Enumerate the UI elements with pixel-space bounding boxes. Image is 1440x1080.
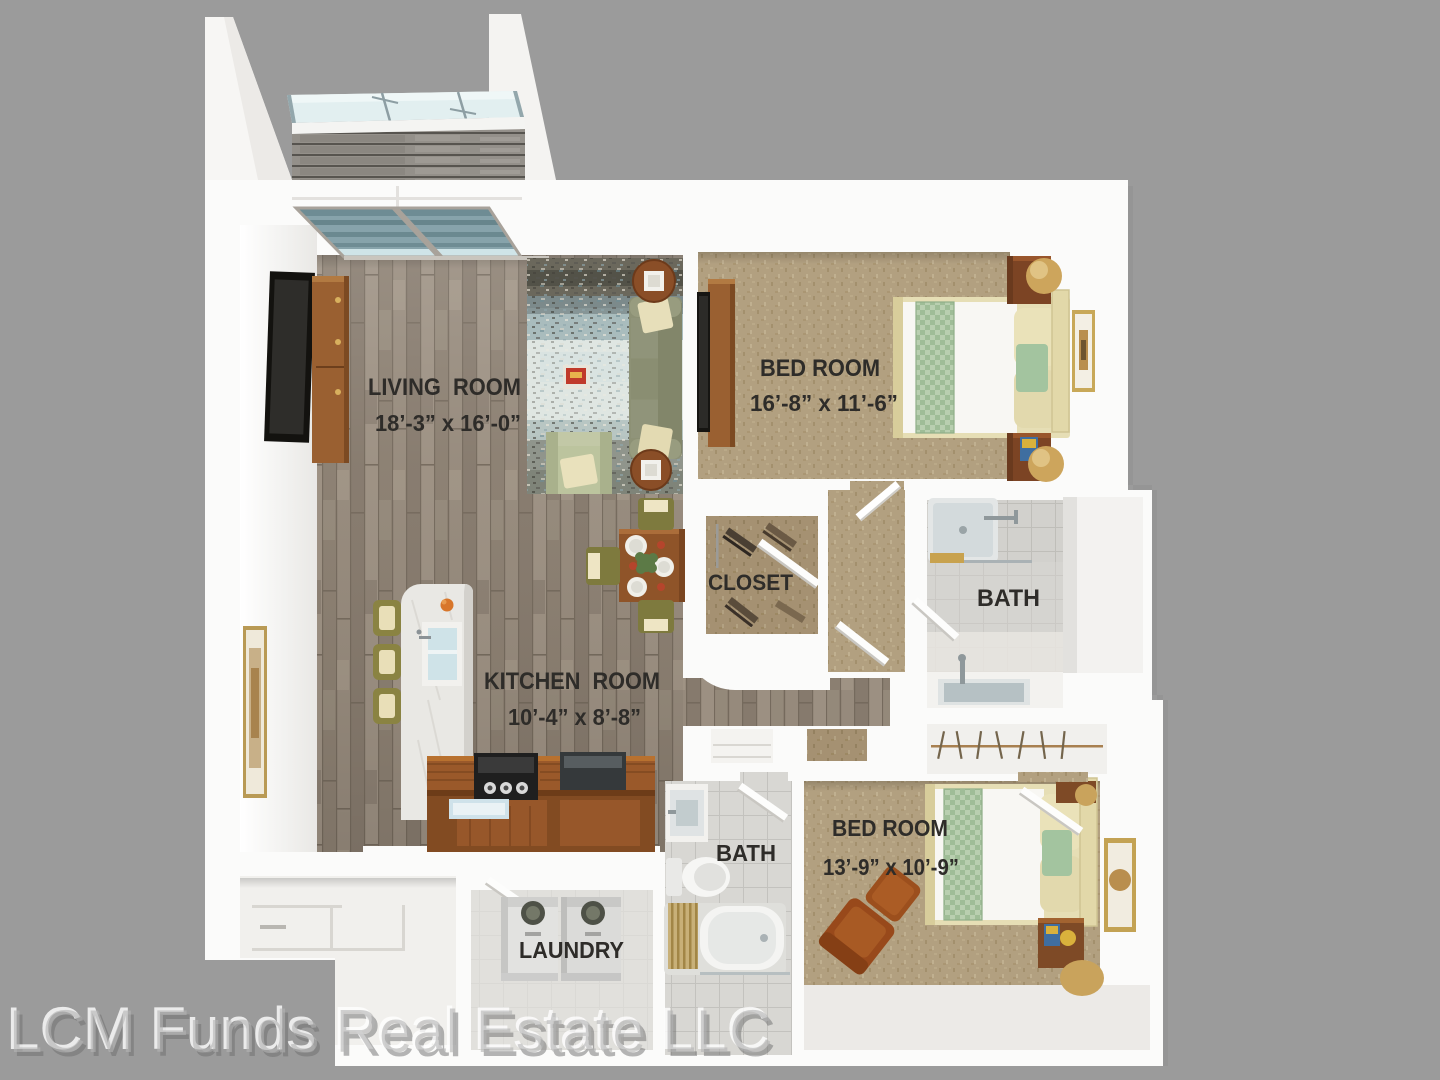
svg-text:BED ROOM: BED ROOM (760, 355, 880, 382)
svg-text:BED ROOM: BED ROOM (832, 815, 948, 841)
svg-text:KITCHEN ROOM: KITCHEN ROOM (484, 668, 660, 695)
svg-text:13’-9” x 10’-9”: 13’-9” x 10’-9” (823, 854, 959, 880)
svg-text:BATH: BATH (977, 585, 1040, 612)
svg-text:18’-3” x 16’-0”: 18’-3” x 16’-0” (375, 410, 521, 436)
svg-text:CLOSET: CLOSET (708, 570, 794, 595)
svg-text:LIVING ROOM: LIVING ROOM (368, 374, 521, 401)
svg-text:10’-4” x 8’-8”: 10’-4” x 8’-8” (508, 704, 641, 730)
svg-text:LCM Funds Real Estate LLC: LCM Funds Real Estate LLC (9, 998, 773, 1065)
svg-text:LAUNDRY: LAUNDRY (519, 937, 624, 963)
svg-text:BATH: BATH (716, 840, 776, 866)
svg-text:16’-8” x 11’-6”: 16’-8” x 11’-6” (750, 390, 898, 416)
